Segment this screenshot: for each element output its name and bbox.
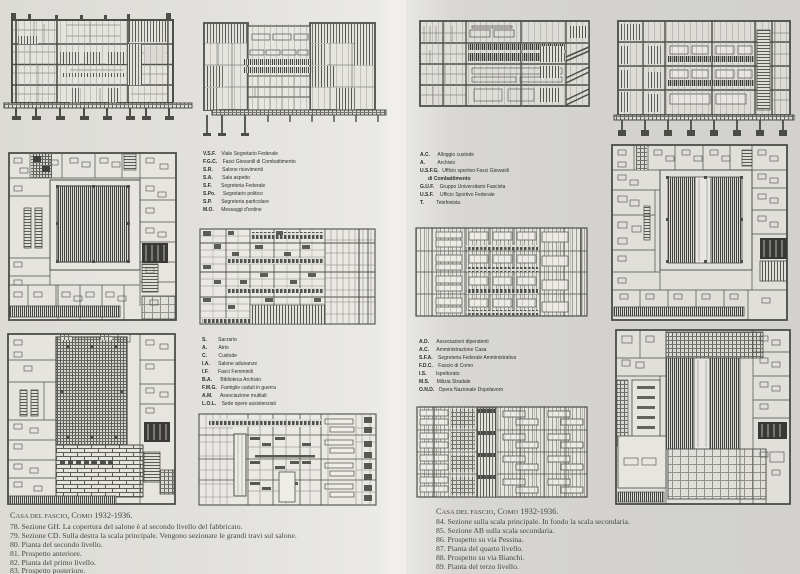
svg-text:G.U.F. Gruppo Universitario Fa: G.U.F. Gruppo Universitario Fascista	[420, 184, 506, 190]
svg-text:F.G.C. Fasci Giovanili di Comb: F.G.C. Fasci Giovanili di Combattimento	[203, 159, 296, 165]
svg-text:A.D. Associazioni dipendenti: A.D. Associazioni dipendenti	[419, 339, 489, 345]
svg-text:80. Pianta del secondo livello: 80. Pianta del secondo livello.	[10, 540, 103, 549]
svg-text:88. Prospetto su via Bianchi.: 88. Prospetto su via Bianchi.	[436, 553, 524, 562]
svg-text:M.S. Milizia Stradale: M.S. Milizia Stradale	[419, 379, 471, 385]
svg-text:I.A. Salone adunanze: I.A. Salone adunanze	[202, 361, 257, 367]
svg-text:F.D.C. Fascio di Como: F.D.C. Fascio di Como	[419, 363, 473, 369]
svg-text:U.S.F. Ufficio Sportivo Federa: U.S.F. Ufficio Sportivo Federale	[420, 192, 495, 198]
svg-text:89. Pianta del terzo livello.: 89. Pianta del terzo livello.	[436, 562, 519, 571]
svg-text:81. Prospetto anteriore.: 81. Prospetto anteriore.	[10, 549, 82, 558]
svg-text:L.O.L. Sede opere assistenzial: L.O.L. Sede opere assistenziali	[202, 401, 276, 407]
svg-text:85. Sezione AB sulla scala sec: 85. Sezione AB sulla scala secondaria.	[436, 526, 555, 535]
svg-text:86. Prospetto su via Pessina.: 86. Prospetto su via Pessina.	[436, 535, 524, 544]
svg-text:CASA DEL FASCIO, COMO 1932-193: CASA DEL FASCIO, COMO 1932-1936.	[10, 511, 132, 520]
svg-text:F.M.G. Famiglie caduti in guer: F.M.G. Famiglie caduti in guerra	[202, 385, 276, 391]
svg-text:M.O. Messaggi d'ordine: M.O. Messaggi d'ordine	[203, 207, 262, 213]
svg-text:83. Prospetto posteriore.: 83. Prospetto posteriore.	[10, 566, 85, 574]
svg-text:U.S.F.G. Ufficio sportivo Fasc: U.S.F.G. Ufficio sportivo Fasci Giovanil…	[420, 168, 509, 174]
svg-text:I.S. Ispettorato: I.S. Ispettorato	[419, 371, 460, 377]
svg-text:CASA DEL FASCIO, COMO 1932-193: CASA DEL FASCIO, COMO 1932-1936.	[436, 507, 558, 516]
svg-text:di Combattimento: di Combattimento	[428, 176, 471, 182]
svg-text:79. Sezione CD. Sulla destra l: 79. Sezione CD. Sulla destra la scala pr…	[10, 531, 297, 540]
svg-text:S.R. Salone ricevimenti: S.R. Salone ricevimenti	[203, 167, 263, 173]
svg-text:A. Archivio: A. Archivio	[420, 160, 455, 166]
svg-text:78. Sezione GH. La copertura d: 78. Sezione GH. La copertura del salone …	[10, 522, 243, 531]
svg-text:84. Sezione sulla scala princi: 84. Sezione sulla scala principale. In f…	[436, 517, 630, 526]
svg-text:S.P. Segreteria particolare: S.P. Segreteria particolare	[203, 199, 269, 205]
svg-text:A.M. Associazione mutilati: A.M. Associazione mutilati	[202, 393, 267, 399]
svg-text:B.A. Biblioteca Archivio: B.A. Biblioteca Archivio	[202, 377, 261, 383]
svg-text:S. Sacrario: S. Sacrario	[202, 337, 237, 343]
svg-text:S.F.A. Segreteria Federale Amm: S.F.A. Segreteria Federale Amministrativ…	[419, 355, 516, 361]
svg-text:S.Po. Segretario politico: S.Po. Segretario politico	[203, 191, 263, 197]
svg-text:S.A. Sala aspetto: S.A. Sala aspetto	[203, 175, 250, 181]
svg-text:A.C. Alloggio custode: A.C. Alloggio custode	[420, 152, 474, 158]
svg-text:S.F. Segreteria Federale: S.F. Segreteria Federale	[203, 183, 265, 189]
svg-text:A.C. Amministrazione Casa: A.C. Amministrazione Casa	[419, 347, 487, 353]
svg-text:C. Custode: C. Custode	[202, 353, 237, 359]
svg-text:V.S.F. Viale Segretario Federa: V.S.F. Viale Segretario Federale	[203, 151, 278, 157]
svg-text:I.F. Fasci Femminili: I.F. Fasci Femminili	[202, 369, 253, 375]
svg-text:87. Pianta del quarto livello.: 87. Pianta del quarto livello.	[436, 544, 523, 553]
svg-text:O.N.D. Opera Nazionale Dopolav: O.N.D. Opera Nazionale Dopolavoro	[419, 387, 503, 393]
